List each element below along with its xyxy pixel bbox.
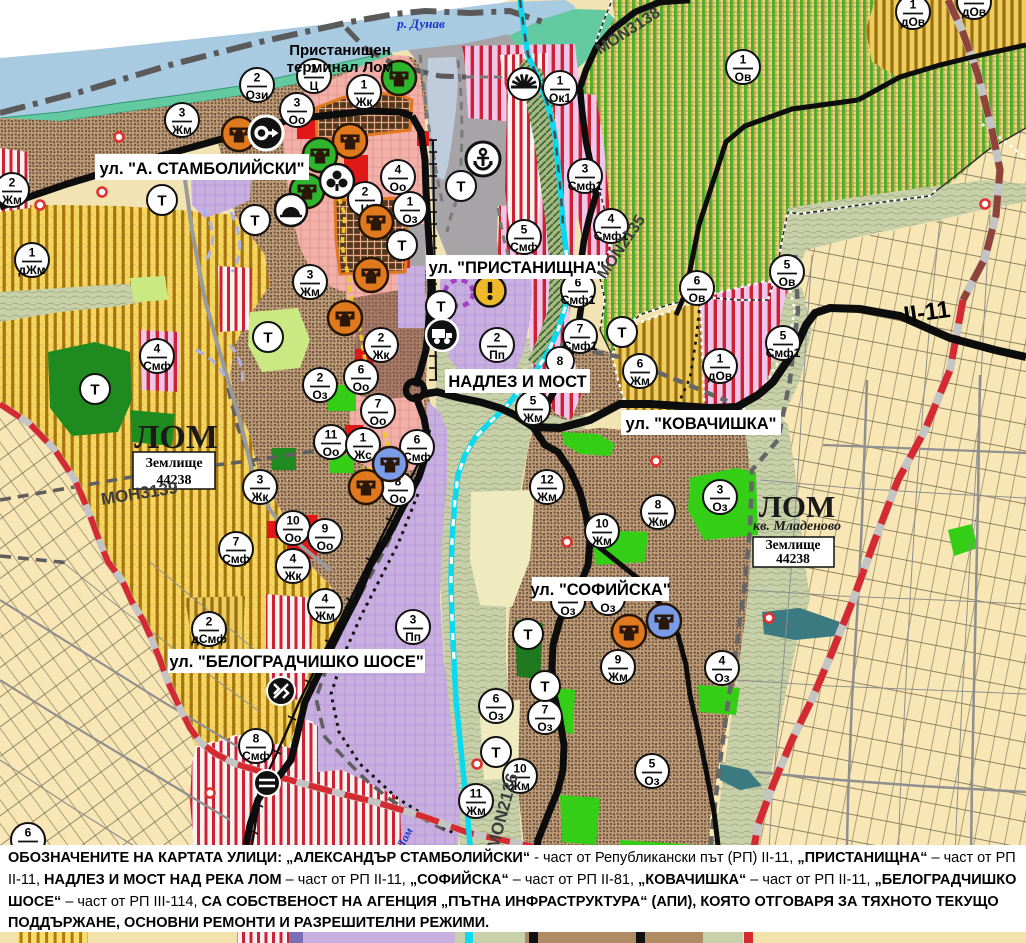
svg-text:Оо: Оо bbox=[370, 414, 387, 428]
svg-text:1: 1 bbox=[360, 431, 367, 445]
svg-text:Жк: Жк bbox=[372, 348, 391, 362]
svg-text:ул. "А. СТАМБОЛИЙСКИ": ул. "А. СТАМБОЛИЙСКИ" bbox=[100, 159, 305, 178]
svg-text:Жм: Жм bbox=[522, 411, 543, 425]
svg-text:Смф: Смф bbox=[242, 749, 270, 763]
svg-text:1: 1 bbox=[910, 0, 917, 12]
svg-text:3: 3 bbox=[257, 473, 264, 487]
svg-text:5: 5 bbox=[649, 757, 656, 771]
svg-text:2: 2 bbox=[494, 331, 501, 345]
svg-text:ул. "КОВАЧИШКА": ул. "КОВАЧИШКА" bbox=[626, 415, 777, 433]
svg-text:Оо: Оо bbox=[390, 180, 407, 194]
svg-text:1: 1 bbox=[717, 352, 724, 366]
svg-text:Жк: Жк bbox=[251, 490, 270, 504]
svg-text:2: 2 bbox=[362, 185, 369, 199]
svg-text:Землище: Землище bbox=[145, 456, 202, 471]
svg-text:Т: Т bbox=[436, 299, 445, 316]
svg-text:11: 11 bbox=[470, 787, 483, 801]
svg-text:Жм: Жм bbox=[465, 804, 486, 818]
svg-text:Смф: Смф bbox=[222, 552, 250, 566]
svg-text:Жк: Жк bbox=[355, 95, 374, 109]
svg-text:дОв: дОв bbox=[708, 369, 732, 383]
svg-text:дОв: дОв bbox=[962, 5, 986, 19]
svg-text:6: 6 bbox=[358, 363, 365, 377]
svg-text:1: 1 bbox=[29, 246, 36, 260]
svg-text:Оз: Оз bbox=[714, 671, 729, 685]
svg-text:2: 2 bbox=[254, 71, 261, 85]
svg-text:Жм: Жм bbox=[299, 285, 320, 299]
svg-text:Т: Т bbox=[397, 238, 406, 255]
svg-text:Жм: Жм bbox=[171, 123, 192, 137]
svg-text:дЖм: дЖм bbox=[18, 263, 45, 277]
svg-text:Оз: Оз bbox=[712, 500, 727, 514]
svg-text:Оо: Оо bbox=[285, 531, 302, 545]
svg-text:Т: Т bbox=[540, 679, 549, 696]
svg-text:Жм: Жм bbox=[1, 193, 22, 207]
svg-text:7: 7 bbox=[542, 703, 549, 717]
svg-text:1: 1 bbox=[407, 195, 414, 209]
svg-text:Смф: Смф bbox=[143, 359, 171, 373]
svg-text:7: 7 bbox=[233, 535, 240, 549]
svg-text:Жк: Жк bbox=[284, 569, 303, 583]
svg-text:Т: Т bbox=[617, 325, 626, 342]
svg-text:ул. "СОФИЙСКА": ул. "СОФИЙСКА" bbox=[530, 580, 670, 599]
svg-text:6: 6 bbox=[493, 692, 500, 706]
svg-text:Т: Т bbox=[523, 627, 532, 644]
svg-text:Т: Т bbox=[263, 330, 272, 347]
svg-text:Ов: Ов bbox=[735, 70, 752, 84]
svg-text:дОв: дОв bbox=[901, 15, 925, 29]
svg-text:ул. "ПРИСТАНИЩНА": ул. "ПРИСТАНИЩНА" bbox=[429, 259, 605, 277]
svg-text:Т: Т bbox=[491, 745, 500, 762]
svg-text:ЛОМ: ЛОМ bbox=[134, 419, 218, 456]
svg-text:Ов: Ов bbox=[779, 275, 796, 289]
svg-text:9: 9 bbox=[322, 522, 329, 536]
svg-text:Смф1: Смф1 bbox=[766, 346, 801, 360]
svg-text:3: 3 bbox=[410, 613, 417, 627]
svg-text:р. Дунав: р. Дунав bbox=[396, 16, 445, 31]
svg-text:6: 6 bbox=[25, 826, 32, 840]
svg-text:4: 4 bbox=[719, 654, 726, 668]
svg-text:терминал Лом: терминал Лом bbox=[287, 59, 394, 76]
svg-text:Пп: Пп bbox=[489, 348, 505, 362]
svg-text:6: 6 bbox=[637, 357, 644, 371]
svg-text:Оо: Оо bbox=[323, 445, 340, 459]
svg-text:Оз: Оз bbox=[644, 774, 659, 788]
svg-text:1: 1 bbox=[361, 78, 368, 92]
svg-text:2: 2 bbox=[317, 371, 324, 385]
svg-text:Смф1: Смф1 bbox=[561, 293, 596, 307]
svg-text:НАДЛЕЗ И МОСТ: НАДЛЕЗ И МОСТ bbox=[448, 373, 586, 391]
svg-text:Смф1: Смф1 bbox=[568, 179, 603, 193]
svg-text:3: 3 bbox=[582, 162, 589, 176]
svg-text:Оз: Оз bbox=[488, 709, 503, 723]
svg-text:Оз: Оз bbox=[312, 388, 327, 402]
svg-text:Т: Т bbox=[157, 193, 166, 210]
svg-text:3: 3 bbox=[307, 268, 314, 282]
svg-text:Оо: Оо bbox=[317, 539, 334, 553]
svg-text:10: 10 bbox=[286, 514, 300, 528]
svg-text:9: 9 bbox=[615, 653, 622, 667]
svg-text:Т: Т bbox=[250, 213, 259, 230]
svg-text:4: 4 bbox=[322, 592, 329, 606]
svg-text:44238: 44238 bbox=[776, 551, 810, 566]
svg-text:кв. Младеново: кв. Младеново bbox=[753, 519, 841, 534]
svg-text:1: 1 bbox=[971, 0, 978, 2]
svg-text:Жм: Жм bbox=[314, 609, 335, 623]
svg-text:10: 10 bbox=[595, 517, 609, 531]
svg-text:4: 4 bbox=[290, 552, 297, 566]
svg-text:Оо: Оо bbox=[289, 113, 306, 127]
svg-text:Ов: Ов bbox=[689, 291, 706, 305]
svg-text:3: 3 bbox=[179, 106, 186, 120]
svg-text:Оз: Оз bbox=[600, 601, 615, 615]
svg-text:Жм: Жм bbox=[536, 490, 557, 504]
svg-text:2: 2 bbox=[206, 615, 213, 629]
svg-text:Оо: Оо bbox=[353, 380, 370, 394]
svg-text:Ок1: Ок1 bbox=[549, 91, 571, 105]
svg-text:Ози: Ози bbox=[246, 88, 269, 102]
svg-text:11: 11 bbox=[325, 428, 338, 442]
svg-text:12: 12 bbox=[540, 473, 554, 487]
svg-text:6: 6 bbox=[694, 274, 701, 288]
svg-text:Ц: Ц bbox=[310, 79, 319, 93]
svg-text:2: 2 bbox=[378, 331, 385, 345]
svg-text:4: 4 bbox=[395, 163, 402, 177]
svg-text:Жм: Жм bbox=[607, 670, 628, 684]
svg-text:8: 8 bbox=[557, 354, 564, 368]
svg-text:1: 1 bbox=[557, 74, 564, 88]
svg-text:Оо: Оо bbox=[390, 492, 407, 506]
svg-text:дСмф: дСмф bbox=[191, 632, 227, 646]
svg-text:Оз: Оз bbox=[560, 604, 575, 618]
svg-text:3: 3 bbox=[717, 483, 724, 497]
svg-text:3: 3 bbox=[294, 96, 301, 110]
svg-text:7: 7 bbox=[375, 397, 382, 411]
svg-text:7: 7 bbox=[577, 322, 584, 336]
svg-text:1: 1 bbox=[740, 53, 747, 67]
svg-text:8: 8 bbox=[655, 498, 662, 512]
svg-text:Землище: Землище bbox=[765, 537, 820, 552]
svg-text:5: 5 bbox=[530, 394, 537, 408]
svg-text:Т: Т bbox=[90, 382, 99, 399]
svg-text:5: 5 bbox=[784, 258, 791, 272]
svg-text:Смф: Смф bbox=[510, 240, 538, 254]
svg-text:2: 2 bbox=[9, 176, 16, 190]
svg-text:5: 5 bbox=[780, 329, 787, 343]
svg-text:Т: Т bbox=[456, 179, 465, 196]
svg-text:6: 6 bbox=[414, 433, 421, 447]
svg-text:Жм: Жм bbox=[647, 515, 668, 529]
svg-text:ул. "БЕЛОГРАДЧИШКО ШОСЕ": ул. "БЕЛОГРАДЧИШКО ШОСЕ" bbox=[169, 653, 423, 671]
svg-text:10: 10 bbox=[513, 762, 527, 776]
svg-text:Пп: Пп bbox=[405, 630, 421, 644]
svg-text:Жм: Жм bbox=[629, 374, 650, 388]
svg-text:Жм: Жм bbox=[591, 534, 612, 548]
svg-text:Оз: Оз bbox=[402, 212, 417, 226]
svg-text:Пристанищен: Пристанищен bbox=[289, 42, 391, 59]
svg-text:4: 4 bbox=[608, 212, 615, 226]
svg-text:5: 5 bbox=[521, 223, 528, 237]
svg-text:4: 4 bbox=[154, 342, 161, 356]
svg-text:Жс: Жс bbox=[353, 448, 372, 462]
svg-text:Оз: Оз bbox=[537, 720, 552, 734]
svg-text:8: 8 bbox=[253, 732, 260, 746]
